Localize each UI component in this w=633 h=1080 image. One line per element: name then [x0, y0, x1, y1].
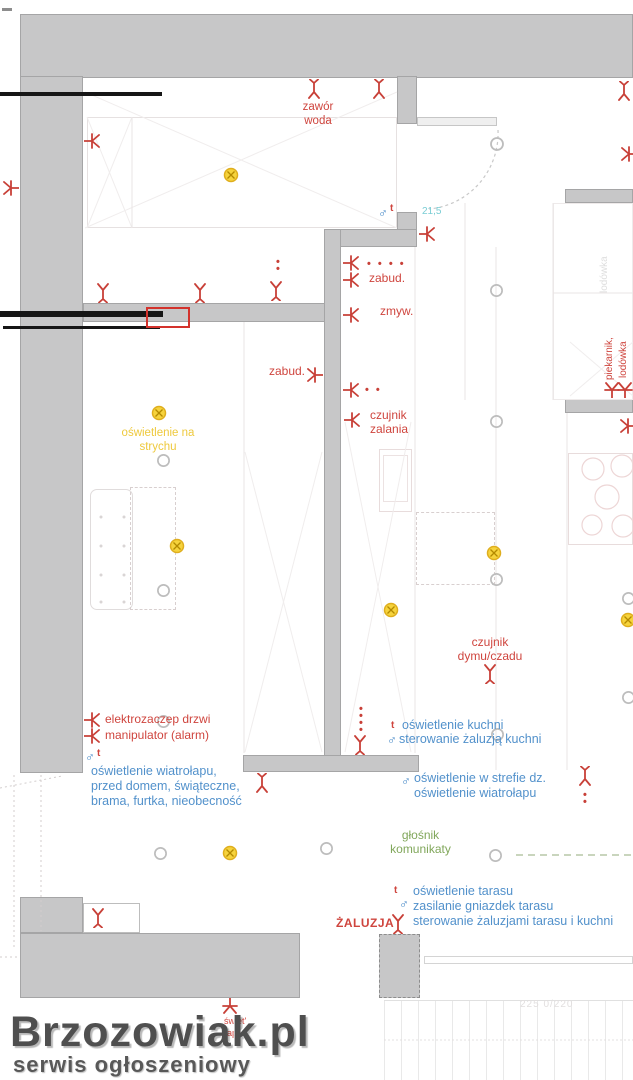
switch-icon	[268, 281, 284, 301]
male-symbol: ♂	[85, 750, 95, 763]
label-osw-strych: oświetlenie na strychu	[98, 426, 218, 454]
socket-count-dots: • •	[276, 259, 282, 273]
label-zawor-woda: zawór woda	[288, 100, 348, 128]
lamp-icon	[156, 583, 171, 598]
light-point-icon	[151, 405, 167, 421]
male-symbol: ♂	[399, 897, 409, 910]
light-point-icon	[223, 167, 239, 183]
socket-icon	[617, 382, 633, 398]
terrace-decking	[384, 1000, 633, 1080]
wall-pillar-top	[397, 76, 417, 124]
socket-icon	[84, 728, 100, 744]
watermark-subtitle: serwis ogłoszeniowy	[13, 1052, 251, 1078]
socket-icon	[343, 382, 359, 398]
light-point-icon	[222, 845, 238, 861]
switch-icon	[352, 735, 368, 755]
socket-count-dots: • •	[583, 792, 589, 806]
label-ster-zaluzja: sterowanie żaluzją kuchni	[399, 732, 541, 747]
cabinet-top-row	[87, 117, 397, 228]
label-zmyw: zmyw.	[380, 304, 413, 318]
lamp-icon	[156, 453, 171, 468]
label-sockets4: • • • •	[367, 259, 406, 270]
label-czujnik-dymu: czujnik dymu/czadu	[430, 635, 550, 663]
wall-terrace-small	[20, 897, 83, 933]
socket-icon	[344, 412, 360, 428]
door-hinge-icon	[489, 136, 505, 152]
label-zaluzja: ŻALUZJA	[336, 916, 394, 930]
wall-left	[20, 76, 83, 773]
lamp-icon	[489, 572, 504, 587]
t-mark: t	[391, 721, 394, 731]
light-point-icon	[169, 538, 185, 554]
socket-icon	[343, 307, 359, 323]
t-mark: t	[390, 204, 393, 214]
label-elektrozaczep: elektrozaczep drzwi	[105, 712, 210, 726]
lamp-icon	[489, 283, 504, 298]
lamp-icon	[488, 848, 503, 863]
lamp-icon	[621, 690, 633, 705]
label-piekarnik: piekarnik,	[604, 337, 615, 380]
t-mark: t	[394, 886, 397, 896]
section-line	[0, 311, 163, 317]
label-wiatrolap: oświetlenie wiatrołapu, przed domem, świ…	[91, 764, 242, 809]
section-line	[3, 326, 160, 329]
switch-icon	[254, 773, 270, 793]
label-lodowka-cabinet: lodówka	[599, 256, 610, 293]
label-glosnik: głośnik komunikaty	[368, 828, 473, 856]
edge-mark	[2, 8, 12, 11]
male-symbol: ♂	[387, 733, 397, 746]
label-zabud: zabud.	[369, 271, 405, 285]
male-symbol: ♂	[401, 774, 411, 787]
wall-right-a	[565, 189, 633, 203]
label-manipulator: manipulator (alarm)	[105, 728, 209, 742]
label-sockets2: • •	[365, 385, 382, 396]
lamp-icon	[621, 591, 633, 606]
cooktop	[568, 453, 633, 545]
switch-icon	[577, 766, 593, 786]
label-zabud: zabud.	[250, 364, 305, 378]
t-mark: t	[97, 749, 100, 759]
valve-icon	[371, 79, 387, 99]
light-point-icon	[486, 545, 502, 561]
section-line	[0, 92, 162, 96]
label-door-width: 21,5	[422, 205, 441, 219]
socket-icon	[343, 255, 359, 271]
label-taras: oświetlenie tarasu zasilanie gniazdek ta…	[413, 884, 613, 929]
socket-icon	[621, 146, 633, 162]
switch-icon	[95, 283, 111, 303]
red-marker-rect	[146, 307, 190, 328]
dishwasher	[416, 512, 495, 585]
lamp-icon	[489, 414, 504, 429]
sink-basin	[383, 455, 408, 502]
socket-icon	[307, 367, 323, 383]
terrace-beam	[424, 956, 633, 964]
door-arc	[429, 130, 498, 209]
switch-icon	[192, 283, 208, 303]
wall-terrace-big	[20, 933, 300, 998]
valve-icon	[616, 81, 632, 101]
socket-icon	[343, 272, 359, 288]
light-point-icon	[383, 602, 399, 618]
label-osw-kuchni: oświetlenie kuchni	[402, 718, 503, 733]
switch-icon	[90, 908, 106, 928]
wall-terrace-pillar	[379, 934, 420, 998]
light-point-icon	[620, 612, 633, 628]
lamp-icon	[153, 846, 168, 861]
male-symbol: ♂	[378, 206, 388, 219]
lamp-icon	[319, 841, 334, 856]
wall-top-band	[20, 14, 633, 78]
wall-bottom-mid	[243, 755, 419, 772]
wall-right-b	[565, 399, 633, 413]
door-sill	[417, 117, 497, 126]
wall-mid-vertical	[324, 229, 341, 756]
stairs	[90, 489, 133, 610]
socket-icon	[84, 712, 100, 728]
watermark-title: Brzozowiak.pl	[10, 1008, 310, 1057]
socket-count-dots: • • • •	[359, 706, 365, 734]
socket-icon	[84, 133, 100, 149]
smoke-sensor-icon	[482, 664, 498, 684]
label-osw-strefa: oświetlenie w strefie dz. oświetlenie wi…	[414, 771, 546, 801]
label-lodowka: lodówka	[618, 341, 629, 378]
valve-icon	[306, 79, 322, 99]
socket-icon	[620, 418, 633, 434]
label-czujnik-zalania: czujnik zalania	[370, 408, 408, 436]
floor-plan: • • • • • • • • zawór woda ♂ t 21,5 • • …	[0, 0, 633, 1080]
socket-icon	[419, 226, 435, 242]
socket-icon	[3, 180, 19, 196]
label-dim-terrace: 225 0/220	[520, 999, 574, 1010]
